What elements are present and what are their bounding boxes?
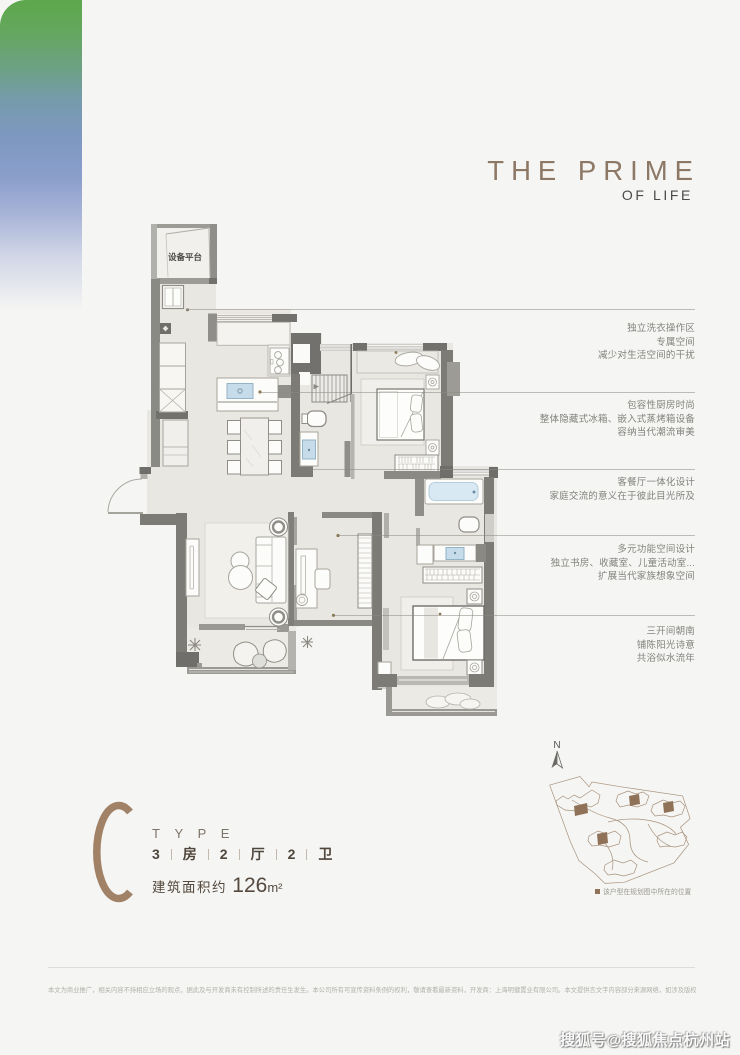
svg-text:设备平台: 设备平台 xyxy=(168,252,203,262)
svg-text:N: N xyxy=(553,740,560,751)
